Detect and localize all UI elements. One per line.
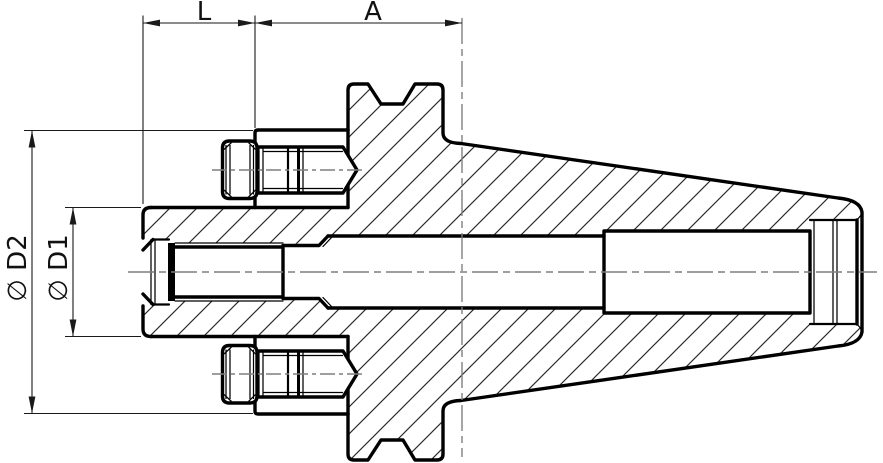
arrow-d1-bottom: [70, 320, 77, 337]
dim-label-d2: ∅ D2: [3, 234, 33, 301]
dim-label-d1: ∅ D1: [44, 234, 74, 301]
arrow-a-right: [445, 20, 462, 27]
technical-drawing: L A ∅ D2 ∅ D1: [0, 0, 883, 463]
arrow-l-left: [143, 20, 160, 27]
dim-label-l: L: [197, 0, 212, 27]
arrow-d2-bottom: [29, 397, 36, 414]
arrow-a-left: [255, 20, 272, 27]
arrow-d2-top: [29, 131, 36, 148]
arrow-d1-top: [70, 208, 77, 225]
arrow-l-right: [238, 20, 255, 27]
technical-drawing-page: L A ∅ D2 ∅ D1: [0, 0, 883, 463]
dim-label-a: A: [364, 0, 382, 27]
